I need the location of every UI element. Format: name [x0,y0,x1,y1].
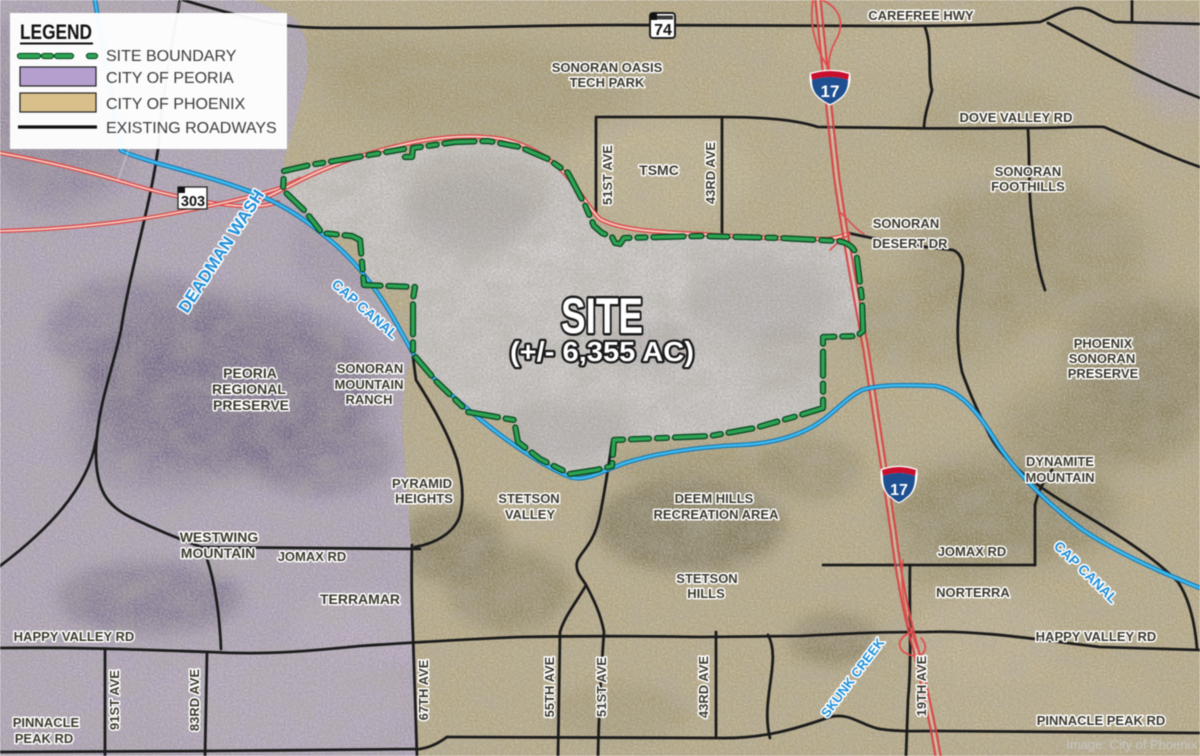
svg-text:REGIONAL: REGIONAL [212,381,286,397]
svg-text:DEEM HILLS: DEEM HILLS [675,491,754,506]
svg-text:17: 17 [890,482,908,499]
svg-text:HILLS: HILLS [687,586,725,601]
svg-text:55TH AVE: 55TH AVE [542,656,557,717]
svg-text:CITY OF PEORIA: CITY OF PEORIA [106,70,234,87]
svg-text:PRESERVE: PRESERVE [213,397,289,413]
svg-text:SONORAN: SONORAN [1069,351,1135,366]
svg-text:WESTWING: WESTWING [180,529,259,545]
svg-text:PRESERVE: PRESERVE [1068,366,1139,381]
svg-text:MOUNTAIN: MOUNTAIN [334,377,403,392]
svg-text:DESERT DR: DESERT DR [872,236,948,251]
svg-text:83RD AVE: 83RD AVE [187,669,202,731]
svg-text:PYRAMID: PYRAMID [392,476,452,491]
svg-text:DYNAMITE: DYNAMITE [1026,454,1094,469]
svg-text:HEIGHTS: HEIGHTS [395,491,453,506]
svg-text:74: 74 [654,22,672,39]
svg-text:MOUNTAIN: MOUNTAIN [181,545,255,561]
svg-text:STETSON: STETSON [498,491,559,506]
svg-text:PEAK RD: PEAK RD [15,731,74,746]
svg-text:SONORAN OASIS: SONORAN OASIS [552,60,663,75]
svg-text:LEGEND: LEGEND [20,21,92,44]
svg-text:VALLEY: VALLEY [505,507,556,522]
svg-text:JOMAX RD: JOMAX RD [938,544,1007,559]
svg-text:43RD AVE: 43RD AVE [703,142,718,204]
svg-text:HAPPY VALLEY RD: HAPPY VALLEY RD [1036,629,1157,644]
svg-text:EXISTING ROADWAYS: EXISTING ROADWAYS [106,120,277,137]
svg-text:RANCH: RANCH [346,392,393,407]
svg-text:SITE BOUNDARY: SITE BOUNDARY [106,48,237,65]
svg-text:CAREFREE HWY: CAREFREE HWY [868,8,974,23]
svg-text:SONORAN: SONORAN [995,164,1061,179]
svg-text:303: 303 [181,194,205,210]
svg-text:PINNACLE: PINNACLE [13,715,80,730]
svg-text:FOOTHILLS: FOOTHILLS [991,179,1065,194]
svg-text:STETSON: STETSON [676,571,737,586]
svg-text:DOVE VALLEY RD: DOVE VALLEY RD [960,110,1073,125]
svg-text:91ST AVE: 91ST AVE [107,670,122,730]
svg-text:MOUNTAIN: MOUNTAIN [1025,470,1094,485]
svg-text:HAPPY VALLEY RD: HAPPY VALLEY RD [14,629,135,644]
svg-text:67TH AVE: 67TH AVE [416,659,431,720]
svg-text:SONORAN: SONORAN [337,361,403,376]
svg-text:PINNACLE PEAK RD: PINNACLE PEAK RD [1037,713,1166,728]
svg-text:SONORAN: SONORAN [873,216,939,231]
svg-text:RECREATION AREA: RECREATION AREA [654,507,780,522]
svg-text:17: 17 [821,82,840,101]
svg-text:43RD AVE: 43RD AVE [696,656,711,718]
svg-text:PEORIA: PEORIA [223,365,277,381]
svg-text:PHOENIX: PHOENIX [1074,336,1133,351]
svg-text:51ST AVE: 51ST AVE [600,145,615,205]
svg-text:TECH PARK: TECH PARK [570,75,645,90]
svg-text:(+/- 6,355 AC): (+/- 6,355 AC) [510,336,694,367]
svg-text:NORTERRA: NORTERRA [936,585,1010,600]
svg-text:TERRAMAR: TERRAMAR [320,591,400,607]
svg-text:TSMC: TSMC [639,162,679,178]
svg-text:51ST AVE: 51ST AVE [594,657,609,717]
svg-text:JOMAX RD: JOMAX RD [278,549,347,564]
svg-text:19TH AVE: 19TH AVE [914,655,929,716]
svg-text:CITY OF PHOENIX: CITY OF PHOENIX [106,96,246,113]
svg-text:Image: City of Phoenix: Image: City of Phoenix [1066,737,1197,752]
